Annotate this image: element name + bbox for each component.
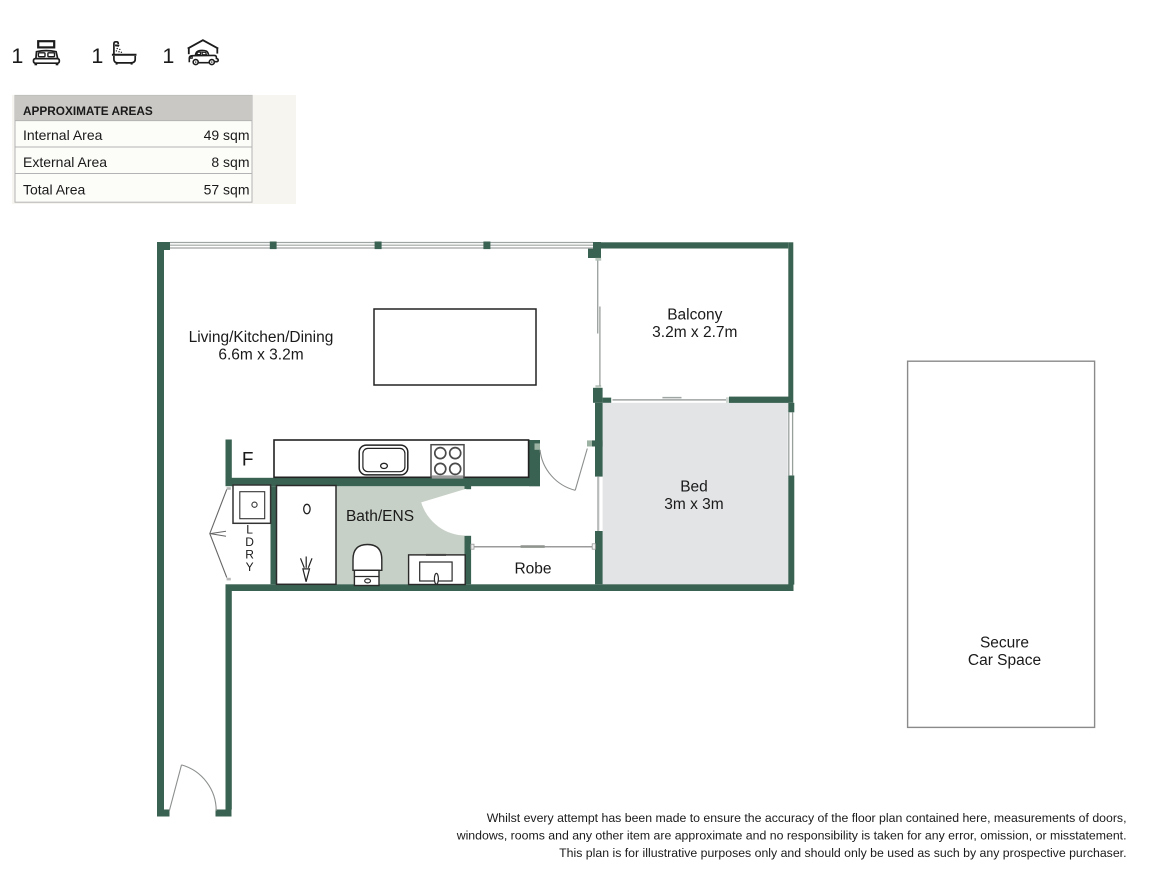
svg-text:APPROXIMATE AREAS: APPROXIMATE AREAS [23,104,153,118]
svg-text:Living/Kitchen/Dining: Living/Kitchen/Dining [189,329,334,346]
svg-text:Robe: Robe [514,560,551,577]
svg-text:windows, rooms and any other i: windows, rooms and any other item are ap… [456,828,1127,842]
svg-text:Internal Area: Internal Area [23,127,103,143]
svg-text:Whilst every attempt has been: Whilst every attempt has been made to en… [487,811,1127,825]
svg-text:6.6m x 3.2m: 6.6m x 3.2m [218,347,303,364]
svg-text:1: 1 [91,44,103,68]
svg-text:8 sqm: 8 sqm [211,154,249,170]
svg-text:3.2m x 2.7m: 3.2m x 2.7m [652,324,737,341]
svg-text:Car Space: Car Space [968,652,1041,669]
svg-text:External Area: External Area [23,154,107,170]
svg-text:49 sqm: 49 sqm [204,127,250,143]
svg-text:Secure: Secure [980,635,1029,652]
svg-text:Y: Y [246,560,254,574]
svg-text:1: 1 [162,44,174,68]
svg-text:3m x 3m: 3m x 3m [664,496,723,513]
svg-text:57 sqm: 57 sqm [204,182,250,198]
svg-text:Total Area: Total Area [23,182,85,198]
svg-text:Bath/ENS: Bath/ENS [346,508,414,525]
svg-text:Bed: Bed [680,478,708,495]
svg-text:This plan is for illustrative: This plan is for illustrative purposes o… [559,846,1126,860]
svg-text:F: F [242,450,254,471]
svg-text:Balcony: Balcony [667,307,722,324]
svg-text:1: 1 [11,44,23,68]
